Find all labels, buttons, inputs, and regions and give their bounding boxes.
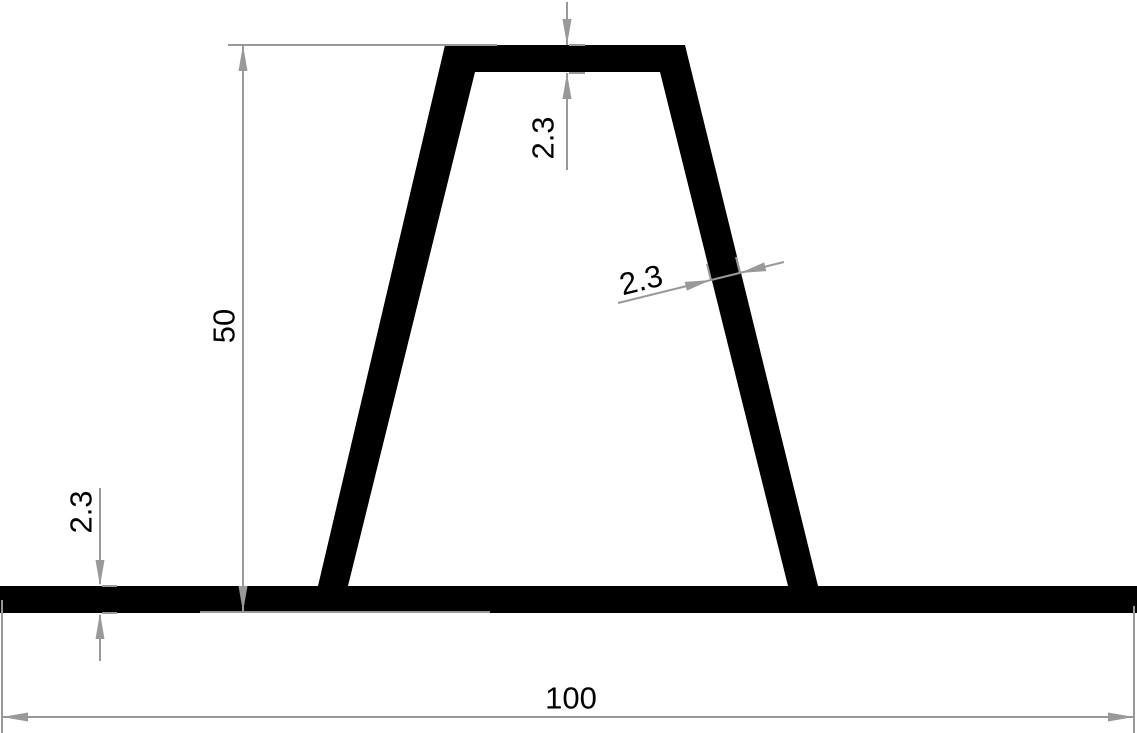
side-thickness-dim-label: 2.3 bbox=[616, 258, 666, 302]
technical-drawing-canvas: 50 2.3 2.3 2.3 100 bbox=[0, 0, 1137, 733]
base-thickness-arrow-down-icon bbox=[96, 560, 105, 586]
base-thickness-arrow-up-icon bbox=[96, 613, 105, 639]
base-thickness-dim-label: 2.3 bbox=[64, 490, 99, 533]
side-thickness-arrow-left-icon bbox=[739, 262, 766, 277]
dimension-lines bbox=[2, 2, 1134, 733]
top-thickness-dim-label: 2.3 bbox=[526, 116, 561, 159]
height-arrow-up-icon bbox=[239, 45, 248, 71]
profile-base-flange bbox=[0, 586, 1137, 613]
profile-geometry bbox=[0, 45, 1137, 613]
top-thickness-arrow-up-icon bbox=[563, 73, 572, 99]
width-arrow-left-icon bbox=[2, 713, 28, 722]
profile-drawing: 50 2.3 2.3 2.3 100 bbox=[0, 0, 1137, 733]
height-dim-label: 50 bbox=[207, 309, 242, 343]
side-thickness-arrow-right-icon bbox=[685, 276, 712, 291]
width-arrow-right-icon bbox=[1108, 713, 1134, 722]
top-thickness-arrow-down-icon bbox=[563, 19, 572, 45]
width-dim-label: 100 bbox=[545, 681, 597, 716]
